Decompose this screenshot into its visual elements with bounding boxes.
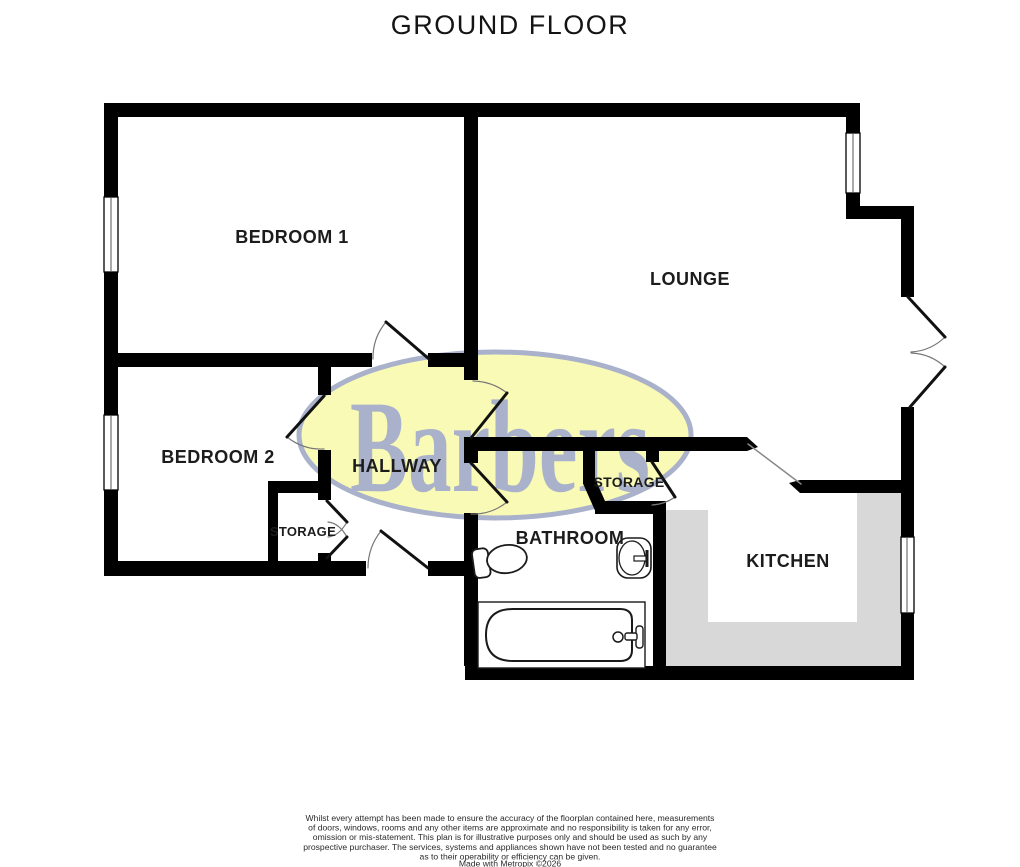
floorplan-canvas: GROUND FLOOR Barbers [0,0,1020,867]
wall-right-lower [901,613,914,666]
watermark: Barbers [299,352,691,520]
bedroom2-window [104,415,118,490]
wall-kitchen-top [800,480,914,493]
page-title: GROUND FLOOR [391,10,630,40]
wall-bottom-bedroom2 [104,561,366,576]
wall-bathroom-left-lower [464,513,478,666]
footer-disclaimer: Whilst every attempt has been made to en… [303,813,717,867]
wall-left-middle [104,272,118,415]
kitchen-counter [666,493,901,666]
bedroom2-label: BEDROOM 2 [161,447,275,467]
hallway-label: HALLWAY [352,456,442,476]
kitchen-label: KITCHEN [746,551,830,571]
wall-lounge-bottom [464,437,747,451]
bathtub [478,602,645,668]
entrance-door [368,531,428,568]
wall-below-lounge-window [846,193,860,207]
wall-bathroom-left-upper [464,437,478,463]
storage-kitchen-label: STORAGE [593,474,664,490]
wall-bedroom1-bottom-left [104,353,372,367]
wall-bedroom2-right-upper [318,353,331,395]
metropix-credit: Made with Metropix ©2026 [459,859,562,867]
storage-hall-label: STORAGE [270,524,336,539]
wall-storage-hall-left [268,481,278,561]
wall-right-jog [846,206,914,219]
kitchen-window [901,537,914,613]
bathroom-fixtures [471,538,651,668]
lounge-french-doors [908,297,945,407]
lounge-window [846,133,860,193]
disclaimer-line: of doors, windows, rooms and any other i… [308,823,712,833]
wall-bathroom-right [653,501,666,666]
lounge-label: LOUNGE [650,269,730,289]
kitchen-door [748,444,801,484]
floorplan-page: GROUND FLOOR Barbers [0,0,1020,867]
bedroom1-window [104,197,118,272]
wall-entrance-right [428,561,466,576]
wall-bedroom1-lounge-divider [464,103,478,380]
wall-right-upper [901,219,914,297]
wall-right-middle [901,407,914,537]
disclaimer-line: prospective purchaser. The services, sys… [303,842,717,852]
wall-topright-corner [846,115,860,133]
bathroom-label: BATHROOM [516,528,625,548]
disclaimer-line: omission or mis-statement. This plan is … [313,832,708,842]
wall-storage-kitchen-stub [646,451,659,462]
bedroom1-door [373,322,429,359]
wall-left-upper [104,103,118,197]
disclaimer-line: Whilst every attempt has been made to en… [306,813,715,823]
bedroom1-label: BEDROOM 1 [235,227,349,247]
wall-top [104,103,860,117]
